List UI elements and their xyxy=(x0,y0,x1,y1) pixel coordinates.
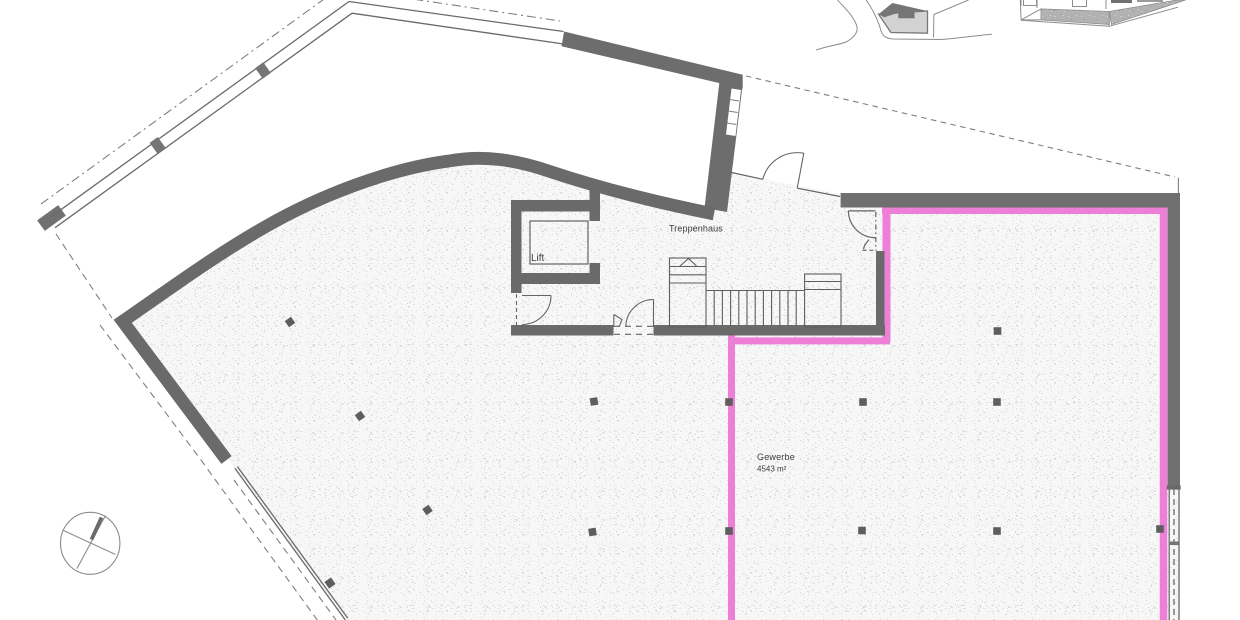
svg-text:Lift: Lift xyxy=(531,253,545,264)
svg-text:Gewerbe: Gewerbe xyxy=(757,452,795,462)
svg-text:4543 m²: 4543 m² xyxy=(757,465,787,474)
svg-text:Treppenhaus: Treppenhaus xyxy=(669,224,723,234)
